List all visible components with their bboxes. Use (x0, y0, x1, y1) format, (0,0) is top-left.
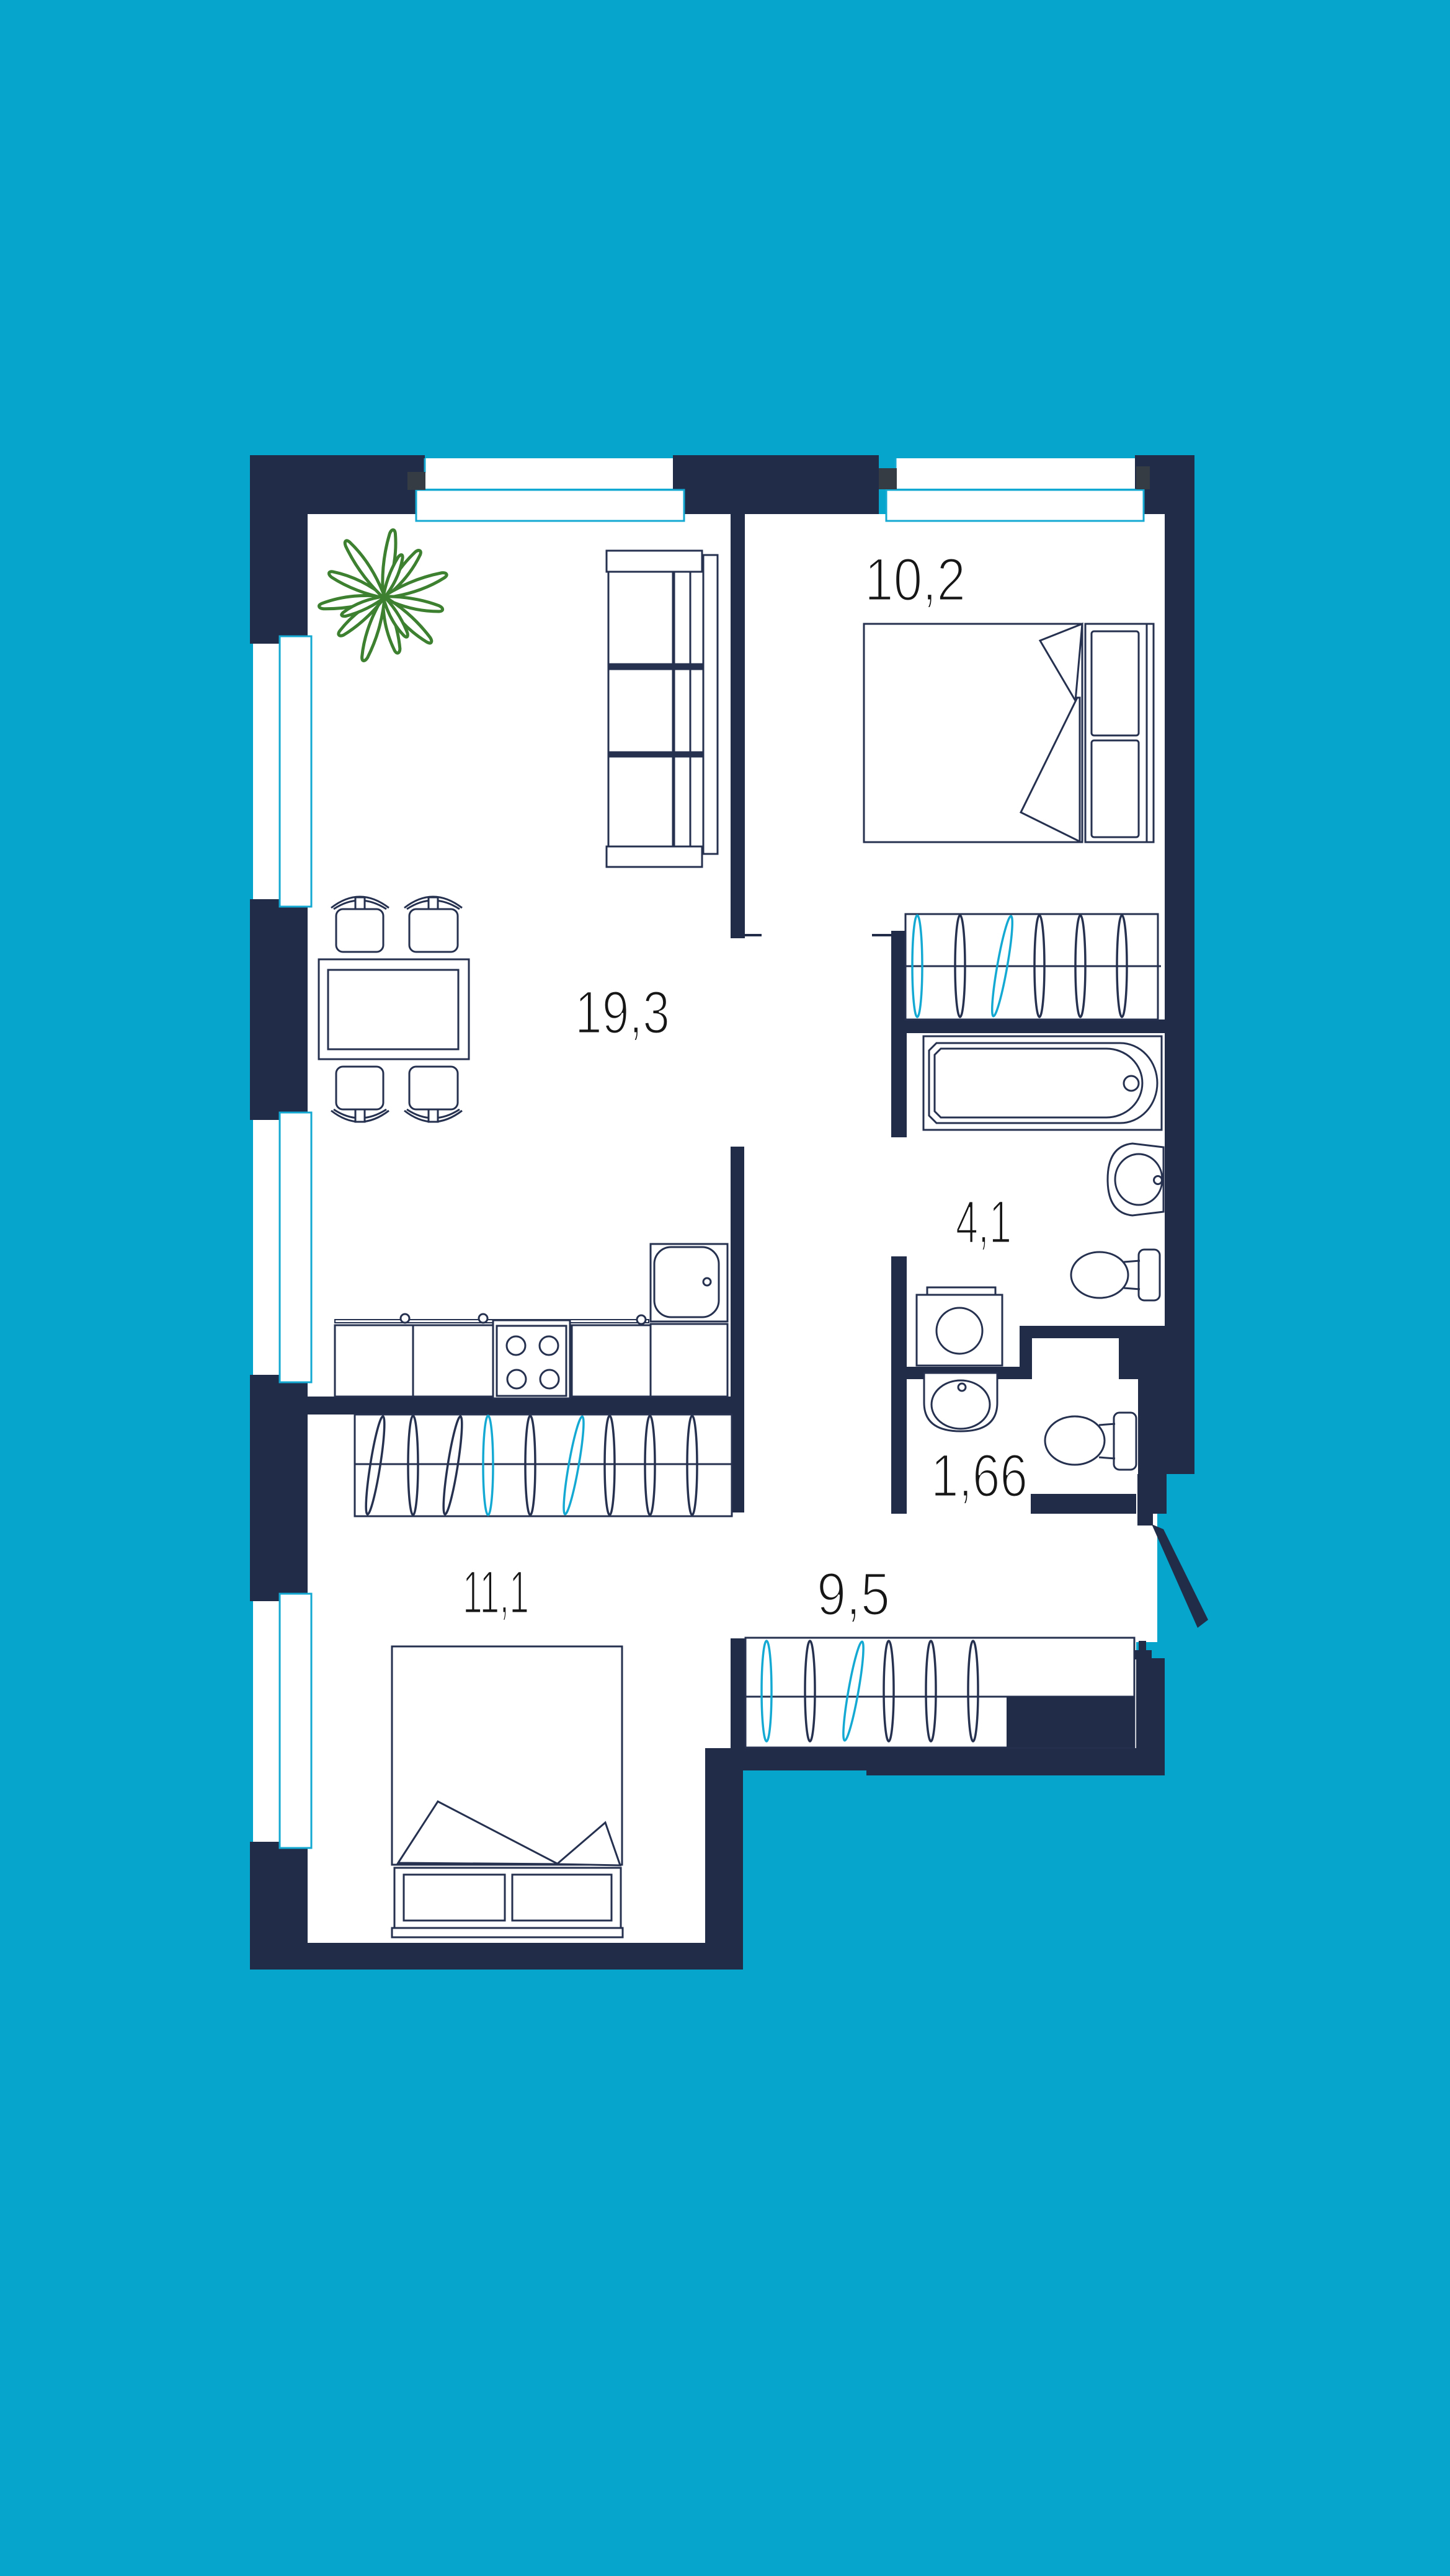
svg-text:1,66: 1,66 (931, 1442, 1028, 1509)
svg-text:4,1: 4,1 (956, 1188, 1012, 1256)
svg-text:11,1: 11,1 (463, 1558, 529, 1626)
svg-text:19,3: 19,3 (575, 979, 670, 1046)
svg-text:10,2: 10,2 (865, 546, 966, 613)
svg-text:9,5: 9,5 (817, 1560, 890, 1628)
